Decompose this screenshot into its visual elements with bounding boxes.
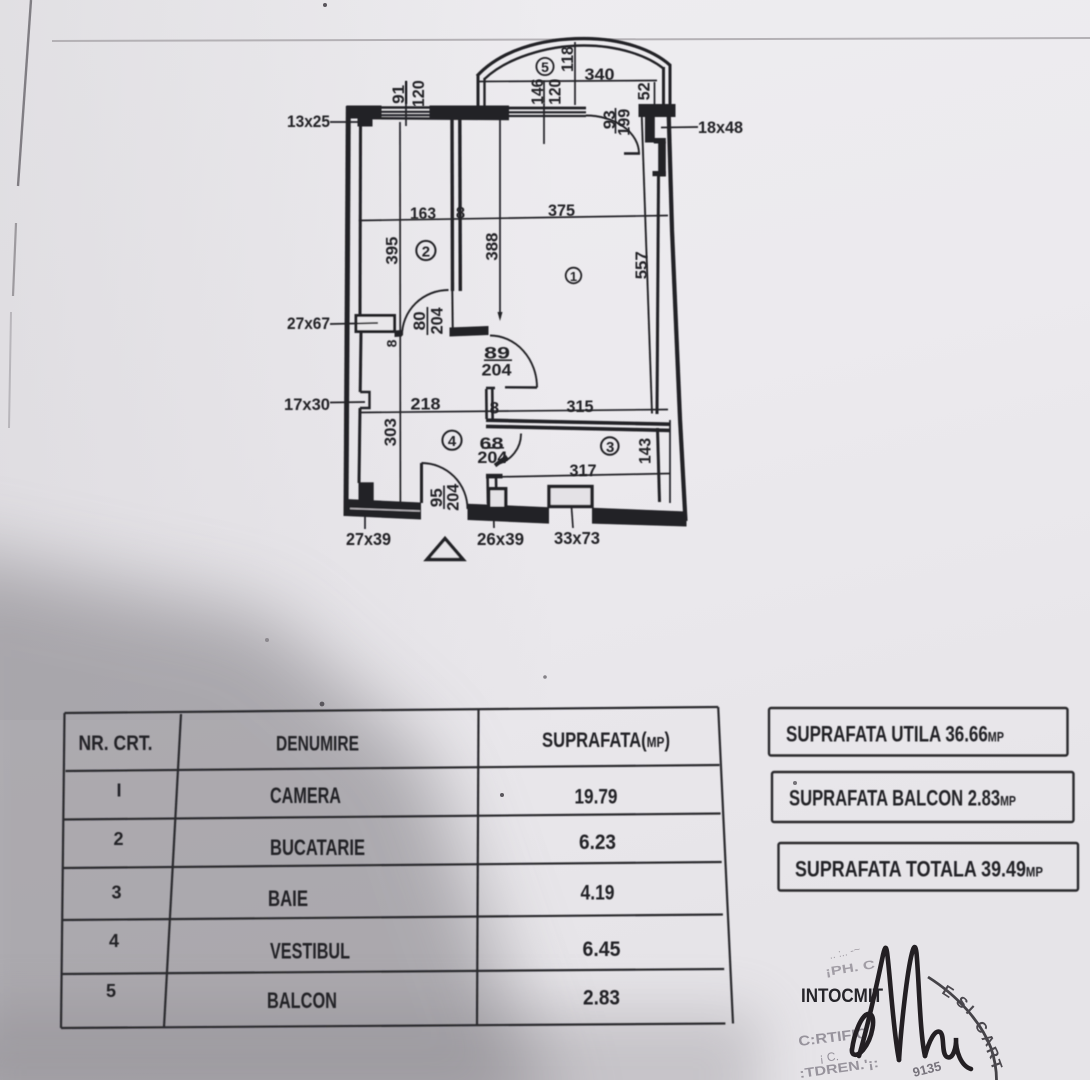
svg-text:6.23: 6.23 <box>579 831 616 854</box>
svg-text:26x39: 26x39 <box>477 529 524 549</box>
svg-text:17x30: 17x30 <box>284 396 330 414</box>
svg-text:NR. CRT.: NR. CRT. <box>79 732 153 755</box>
svg-text:27x39: 27x39 <box>346 529 391 549</box>
svg-text:SUPRAFATA BALCON 2.83MP: SUPRAFATA BALCON 2.83MP <box>789 786 1016 811</box>
svg-text:340: 340 <box>585 66 615 84</box>
svg-text:204: 204 <box>482 362 513 380</box>
svg-text:18x48: 18x48 <box>698 119 743 137</box>
svg-text:2.83: 2.83 <box>583 987 620 1010</box>
svg-text:3: 3 <box>111 883 121 903</box>
svg-text:8: 8 <box>456 205 465 223</box>
svg-text:557: 557 <box>633 251 651 279</box>
svg-text:8: 8 <box>384 339 400 347</box>
svg-text:120: 120 <box>410 80 428 107</box>
svg-text:375: 375 <box>548 202 575 220</box>
svg-text:5: 5 <box>106 981 116 1001</box>
svg-text:199: 199 <box>616 109 634 136</box>
svg-text:CAMERA: CAMERA <box>270 783 341 808</box>
svg-text:19.79: 19.79 <box>575 786 618 809</box>
svg-text:2: 2 <box>422 244 430 261</box>
svg-text:163: 163 <box>410 205 436 223</box>
svg-text:204: 204 <box>428 307 446 335</box>
svg-text:218: 218 <box>411 396 441 414</box>
svg-text:6.45: 6.45 <box>583 938 621 961</box>
svg-text:52: 52 <box>636 82 654 100</box>
svg-text:91: 91 <box>390 85 408 104</box>
svg-text:303: 303 <box>382 418 400 446</box>
svg-text:143: 143 <box>637 438 655 464</box>
svg-text:I: I <box>116 781 121 801</box>
svg-text:80: 80 <box>411 311 429 330</box>
svg-text:118: 118 <box>559 46 577 72</box>
svg-text:BUCATARIE: BUCATARIE <box>270 835 365 860</box>
svg-text:13x25: 13x25 <box>287 113 330 131</box>
svg-text:DENUMIRE: DENUMIRE <box>276 733 359 756</box>
svg-text:3: 3 <box>606 439 614 456</box>
svg-text:1: 1 <box>570 269 577 284</box>
svg-text:388: 388 <box>483 233 501 261</box>
svg-text:395: 395 <box>384 237 402 265</box>
svg-text:5: 5 <box>541 59 549 75</box>
svg-text:SUPRAFATA UTILA 36.66MP: SUPRAFATA UTILA 36.66MP <box>786 722 1004 747</box>
svg-text:4.19: 4.19 <box>581 882 615 905</box>
svg-text:204: 204 <box>477 449 508 467</box>
svg-text:315: 315 <box>567 398 594 416</box>
svg-text:317: 317 <box>570 462 597 480</box>
svg-text:8: 8 <box>490 400 499 418</box>
svg-text:33x73: 33x73 <box>554 528 600 548</box>
svg-text:VESTIBUL: VESTIBUL <box>270 939 350 964</box>
svg-text:2: 2 <box>113 829 123 849</box>
svg-text:204: 204 <box>445 483 463 511</box>
svg-text:120: 120 <box>546 79 564 105</box>
svg-text:4: 4 <box>448 433 457 450</box>
svg-text:BAIE: BAIE <box>268 886 308 911</box>
svg-text:27x67: 27x67 <box>287 315 330 333</box>
svg-text:BALCON: BALCON <box>267 988 337 1013</box>
svg-text:4: 4 <box>109 931 119 951</box>
svg-text:SUPRAFATA TOTALA 39.49MP: SUPRAFATA TOTALA 39.49MP <box>795 857 1043 882</box>
